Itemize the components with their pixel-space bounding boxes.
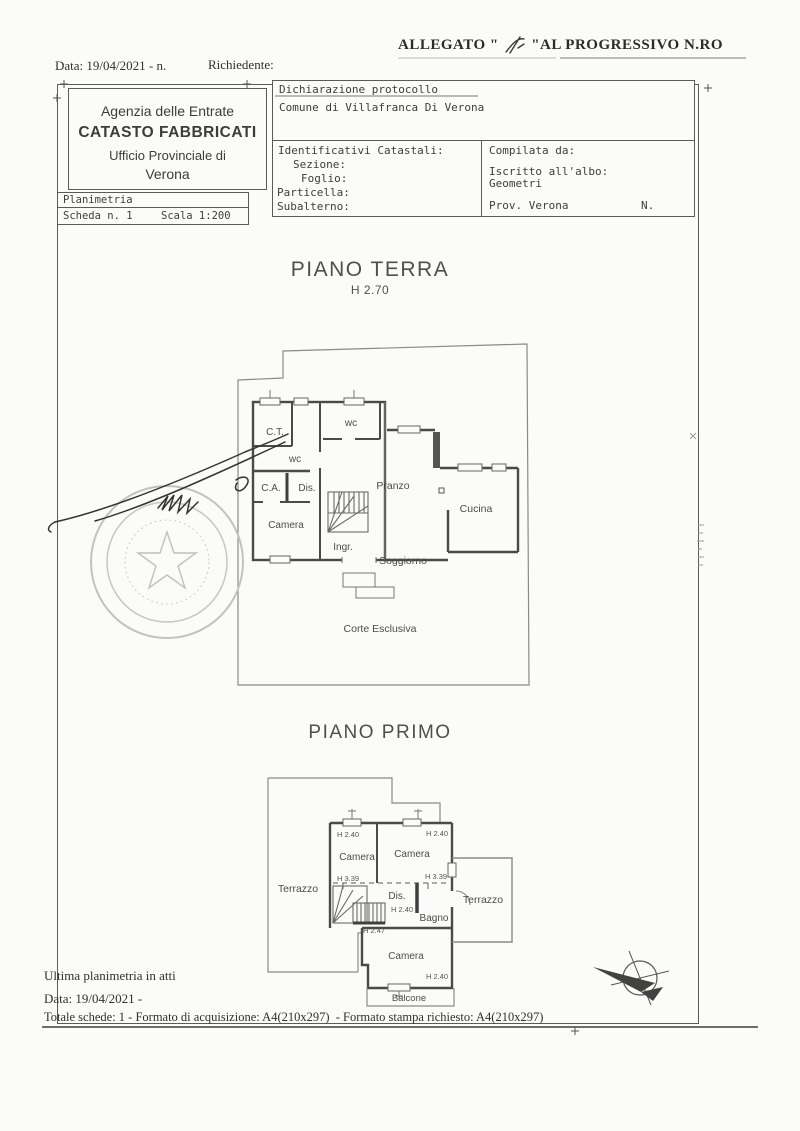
- staircase: [328, 492, 368, 532]
- planimetria-label: Planimetria: [63, 194, 248, 206]
- richiedente-label: Richiedente:: [208, 57, 274, 73]
- corner-pillar: [433, 432, 440, 468]
- label-h339-left: H 3.39: [337, 874, 359, 883]
- label-h240-dis: H 2.40: [391, 905, 413, 914]
- allegato-header: ALLEGATO " "AL PROGRESSIVO N.RO: [398, 34, 723, 56]
- catastali-divider: [481, 141, 482, 216]
- label-h339-right: H 3.39: [425, 872, 447, 881]
- scanned-cadastral-document: { "colors": { "paper": "#fbfbf9", "ink":…: [0, 0, 800, 1131]
- catastali-foglio: Foglio:: [301, 172, 347, 185]
- room-label-dis: Dis.: [298, 483, 315, 494]
- north-compass-icon: [585, 945, 695, 1010]
- label-h240-tr: H 2.40: [426, 829, 448, 838]
- room-label-soggiorno: Soggiorno: [379, 555, 427, 567]
- footer-line2: Data: 19/04/2021 -: [44, 991, 142, 1007]
- catastali-sezione: Sezione:: [293, 158, 346, 171]
- label-terrazzo-left: Terrazzo: [278, 883, 318, 895]
- compilata-n: N.: [641, 199, 654, 212]
- ground-floor-height: H 2.70: [270, 283, 470, 297]
- label-camera-right: Camera: [394, 849, 430, 860]
- first-floor-title: PIANO PRIMO: [280, 722, 480, 744]
- label-h247: H 2.47: [363, 926, 385, 935]
- office-line4: Verona: [69, 166, 266, 182]
- label-dis: Dis.: [388, 891, 405, 902]
- footer-line3: Totale schede: 1 - Formato di acquisizio…: [44, 1010, 543, 1025]
- label-h240-tl: H 2.40: [337, 830, 359, 839]
- room-label-corte: Corte Esclusiva: [344, 623, 417, 635]
- label-bagno: Bagno: [420, 913, 449, 924]
- protocol-box: Dichiarazione protocollo Comune di Villa…: [272, 80, 695, 142]
- label-camera-bottom: Camera: [388, 951, 424, 962]
- ground-floor-title: PIANO TERRA: [270, 258, 470, 282]
- room-label-pranzo: Pranzo: [376, 480, 409, 492]
- signature: [40, 420, 300, 545]
- label-balcone: Balcone: [392, 993, 426, 1004]
- date-line: Data: 19/04/2021 - n.: [55, 58, 166, 74]
- scheda-box: Scheda n. 1 Scala 1:200: [57, 207, 249, 225]
- office-line3: Ufficio Provinciale di: [69, 148, 266, 163]
- catastali-subalterno: Subalterno:: [277, 200, 350, 213]
- scheda-number: Scheda n. 1: [63, 210, 133, 222]
- catastali-particella: Particella:: [277, 186, 350, 199]
- catastali-title: Identificativi Catastali:: [278, 144, 444, 157]
- protocol-title: Dichiarazione protocollo: [279, 83, 438, 96]
- room-label-wc1: wc: [344, 418, 357, 429]
- office-line2: CATASTO FABBRICATI: [69, 124, 266, 142]
- footer-line1: Ultima planimetria in atti: [44, 968, 176, 984]
- allegato-text-right: "AL PROGRESSIVO N.RO: [527, 37, 723, 54]
- compilata-title: Compilata da:: [489, 144, 575, 157]
- office-box: Agenzia delle Entrate CATASTO FABBRICATI…: [68, 88, 267, 190]
- catastali-box: Identificativi Catastali: Sezione: Fogli…: [272, 140, 695, 217]
- room-label-cucina: Cucina: [460, 503, 493, 515]
- label-h240-bottom: H 2.40: [426, 972, 448, 981]
- office-line1: Agenzia delle Entrate: [69, 103, 266, 119]
- compilata-geometri: Geometri: [489, 177, 542, 190]
- label-terrazzo-right: Terrazzo: [463, 894, 503, 906]
- label-camera-left: Camera: [339, 852, 375, 863]
- scala-label: Scala 1:200: [161, 210, 231, 222]
- first-floor-plan: H 2.40 H 2.40 Camera Camera Terrazzo H 3…: [255, 765, 585, 1015]
- staircase-first-floor: [333, 886, 385, 923]
- handwritten-mark: [503, 34, 527, 56]
- protocol-comune: Comune di Villafranca Di Verona: [279, 101, 484, 114]
- allegato-text-left: ALLEGATO ": [398, 37, 503, 54]
- compilata-prov: Prov. Verona: [489, 199, 568, 212]
- room-label-ingr: Ingr.: [333, 542, 352, 553]
